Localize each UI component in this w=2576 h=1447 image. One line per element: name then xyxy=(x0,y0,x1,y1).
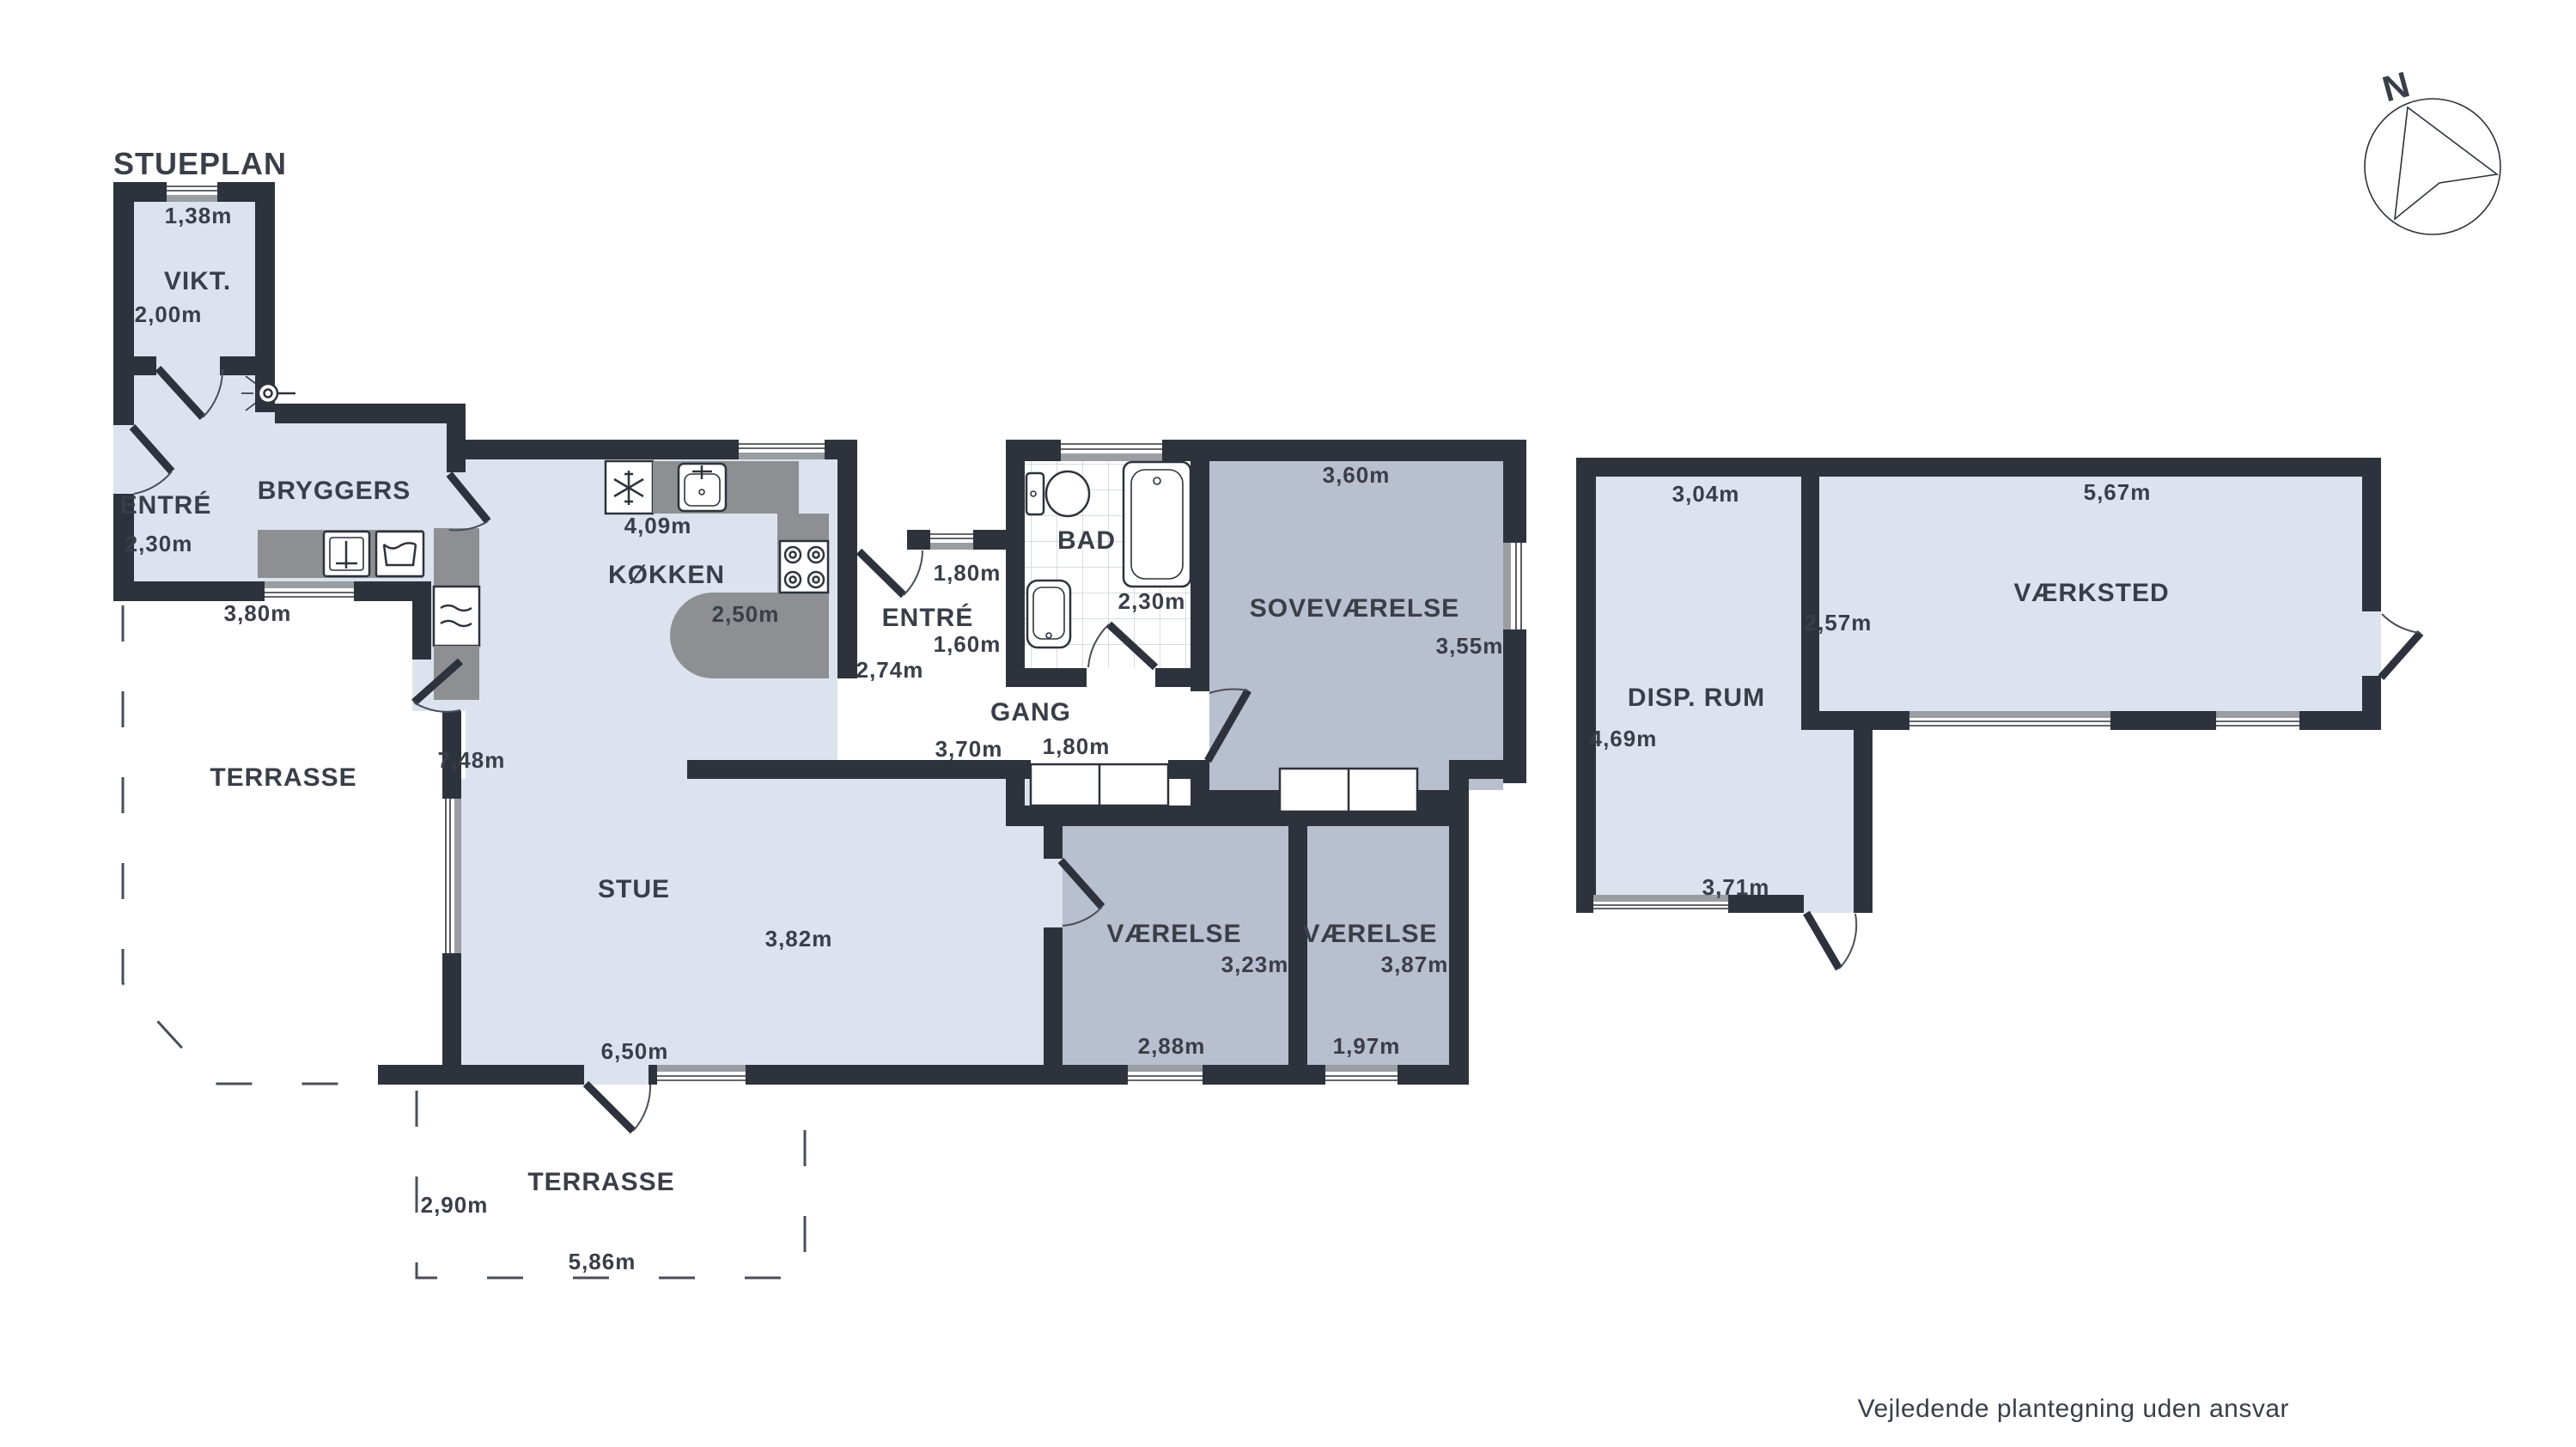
dim-vaerksted-height: 2,57m xyxy=(1805,610,1873,635)
dim-gang-width: 3,70m xyxy=(935,736,1003,762)
dim-terrasse-width: 5,86m xyxy=(569,1249,636,1274)
dim-bad-width: 2,30m xyxy=(1118,588,1186,614)
laundry-tub-icon xyxy=(376,532,423,576)
room-floor-sovevaerelse xyxy=(1209,459,1503,790)
fridge-snowflake-icon xyxy=(606,461,653,514)
dim-entre2-width: 1,80m xyxy=(934,560,1002,586)
window-vikt xyxy=(167,182,217,202)
room-label-gang: GANG xyxy=(990,698,1071,727)
dim-disprum-width: 3,04m xyxy=(1672,481,1740,507)
dim-vikt-width: 1,38m xyxy=(165,203,233,228)
terrasse-left-outline xyxy=(123,605,376,1084)
compass-north-label: N xyxy=(2378,64,2415,110)
closet-gang xyxy=(1031,764,1168,806)
dim-gang-depth: 1,80m xyxy=(1043,733,1111,759)
room-label-bryggers: BRYGGERS xyxy=(258,477,411,505)
room-label-bad: BAD xyxy=(1057,526,1116,555)
bathtub-icon xyxy=(1124,462,1191,587)
dim-stue-width: 6,50m xyxy=(601,1038,669,1064)
window-vaerelse2 xyxy=(1325,1065,1398,1085)
window-sovevaerelse xyxy=(1503,543,1526,629)
dim-terrasse-height: 2,90m xyxy=(421,1192,489,1218)
room-label-vaerelse2: VÆRELSE xyxy=(1302,920,1437,948)
window-stue-left xyxy=(442,799,461,953)
disclaimer-text: Vejledende plantegning uden ansvar xyxy=(1858,1395,2289,1423)
dim-vaerksted-width: 5,67m xyxy=(2084,479,2152,505)
dim-vaerelse2-width: 1,97m xyxy=(1333,1033,1401,1059)
room-label-vaerelse1: VÆRELSE xyxy=(1106,920,1241,948)
dim-kokken-height: 2,50m xyxy=(712,601,780,627)
room-label-entre2: ENTRÉ xyxy=(882,603,974,632)
window-entre2 xyxy=(930,530,973,550)
compass-north-icon: N xyxy=(2365,64,2500,234)
closet-sovevaerelse xyxy=(1280,769,1417,812)
room-label-vaerksted: VÆRKSTED xyxy=(2013,579,2169,607)
dim-entre2-depth: 2,74m xyxy=(856,657,924,683)
door-disprum xyxy=(1806,913,1856,969)
stove-burners-icon xyxy=(780,541,828,593)
room-label-sovevaerelse: SOVEVÆRELSE xyxy=(1250,594,1459,623)
window-vaerelse1 xyxy=(1128,1065,1203,1085)
window-kokken xyxy=(739,440,825,459)
room-label-stue: STUE xyxy=(598,875,670,903)
floorplan-canvas: N STUEPLAN VIKT. ENTRÉ BRYGGERS KØKKEN E… xyxy=(0,0,2576,1447)
dim-vaerelse1-height: 3,23m xyxy=(1221,951,1289,977)
floorplan-drawing: N STUEPLAN VIKT. ENTRÉ BRYGGERS KØKKEN E… xyxy=(0,0,2576,1447)
dim-bryggers-width: 3,80m xyxy=(224,600,292,626)
window-bryggers xyxy=(265,581,354,601)
room-label-kokken: KØKKEN xyxy=(608,561,725,589)
plan-title: STUEPLAN xyxy=(113,146,287,181)
dim-vaerelse1-width: 2,88m xyxy=(1138,1033,1206,1059)
door-vaerksted xyxy=(2381,614,2421,678)
dim-vaerelse2-height: 3,87m xyxy=(1381,951,1449,977)
dim-entre1-height: 2,30m xyxy=(125,531,193,556)
room-label-terrasse-bottom: TERRASSE xyxy=(527,1168,674,1196)
dim-disprum-width2: 3,71m xyxy=(1702,874,1770,900)
dim-stue-right: 3,82m xyxy=(765,926,833,951)
washbasin-icon xyxy=(1027,581,1070,648)
room-floor-stue xyxy=(461,779,1044,1065)
dim-vikt-height: 2,00m xyxy=(135,301,203,327)
room-label-disprum: DISP. RUM xyxy=(1628,684,1765,712)
room-label-entre1: ENTRÉ xyxy=(120,490,212,520)
window-bad xyxy=(1061,440,1162,461)
window-vaerksted-2 xyxy=(2216,711,2299,730)
dim-entre2-height: 1,60m xyxy=(934,631,1002,657)
kitchen-sink-icon xyxy=(679,464,726,511)
dim-sove-width: 3,60m xyxy=(1323,462,1391,488)
door-terrasse-bottom xyxy=(586,1084,650,1131)
dim-disprum-height: 4,69m xyxy=(1590,726,1658,751)
dim-sove-height: 3,55m xyxy=(1436,633,1504,659)
toilet-icon xyxy=(1026,471,1089,516)
dim-stue-height: 7,48m xyxy=(438,747,506,773)
utility-sink-icon xyxy=(324,532,369,576)
window-vaerksted-1 xyxy=(1909,711,2110,730)
window-stue-bottom xyxy=(657,1065,746,1085)
dim-kokken-width: 4,09m xyxy=(624,513,692,538)
room-label-terrasse-left: TERRASSE xyxy=(210,763,356,792)
room-label-vikt: VIKT. xyxy=(164,267,231,295)
